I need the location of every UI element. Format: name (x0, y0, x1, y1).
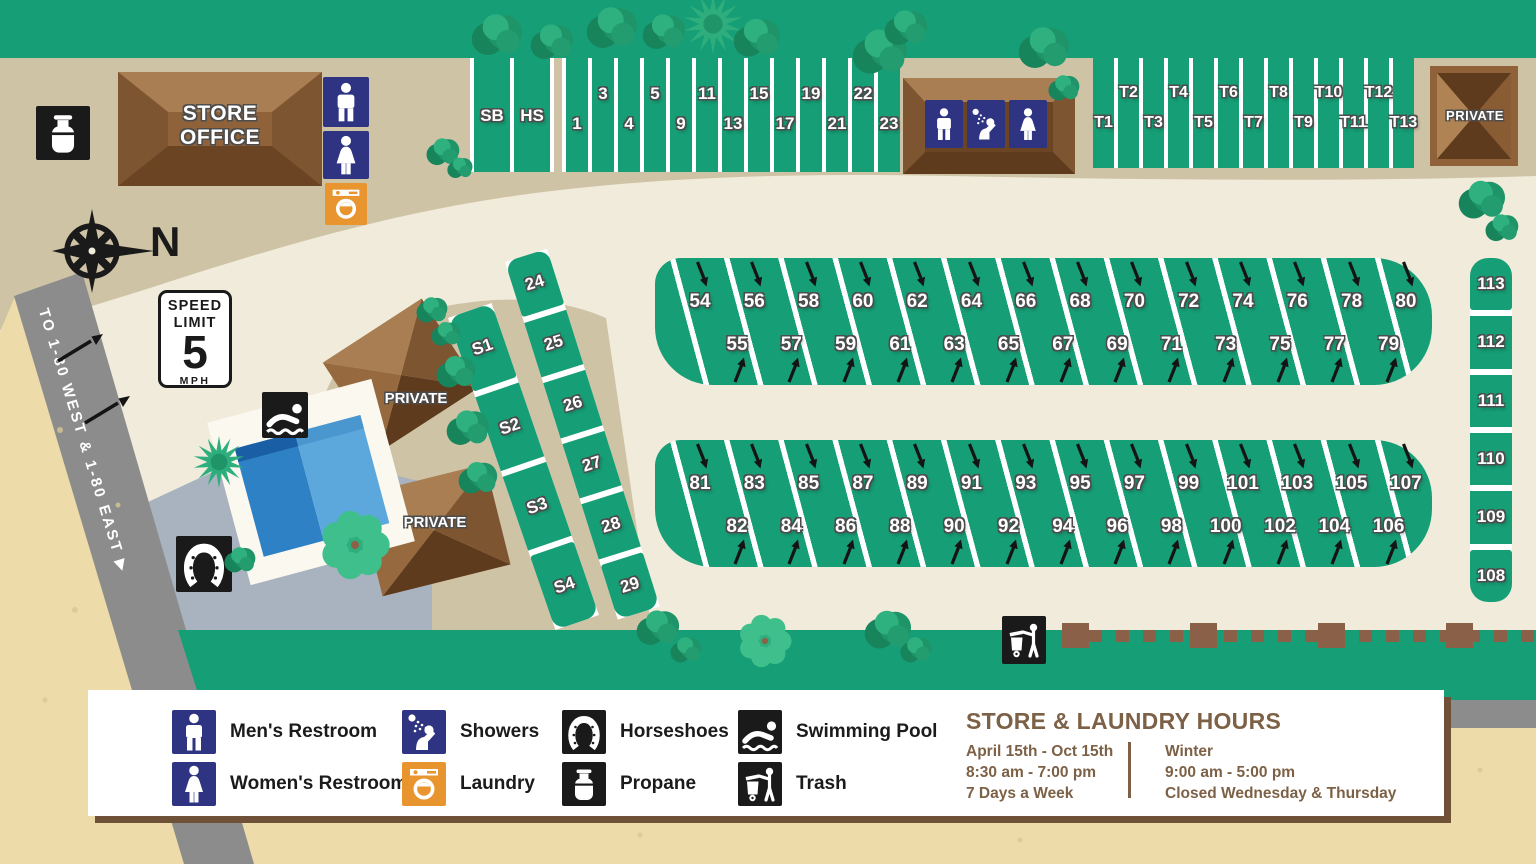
pull-in-arrow-icon (732, 356, 749, 383)
pull-in-arrow-icon (894, 538, 911, 565)
pull-in-arrow-icon (1003, 538, 1020, 565)
campsite-label: 89 (907, 473, 928, 495)
pull-in-arrow-icon (1346, 443, 1363, 470)
campsite-label: 60 (852, 291, 873, 313)
mens-restroom-icon (172, 710, 216, 754)
campsite-label: 65 (998, 334, 1019, 356)
front-campsite-row: SBHS134591113151719212223 (450, 58, 900, 172)
pull-in-arrow-icon (1275, 356, 1292, 383)
campsite-label: 102 (1264, 516, 1296, 538)
campground-map: STOREOFFICE PRIVATE PRIVATE PRIVATE (0, 0, 1536, 864)
pull-in-arrow-icon (1329, 538, 1346, 565)
campsite-label: 80 (1395, 291, 1416, 313)
pull-in-arrow-icon (786, 356, 803, 383)
campsite-label: 9 (676, 114, 685, 134)
campsite-label: T10 (1315, 84, 1343, 102)
campsite-label: 54 (689, 291, 710, 313)
legend-item-label: Showers (460, 721, 539, 743)
campsite-label: 92 (998, 516, 1019, 538)
campsite-label: 57 (781, 334, 802, 356)
pull-in-arrow-icon (1329, 356, 1346, 383)
campsite-label: 113 (1477, 274, 1504, 294)
campsite-label: 68 (1070, 291, 1091, 313)
pull-in-arrow-icon (1400, 261, 1417, 288)
legend-item-label: Women's Restroom (230, 773, 407, 795)
strip-gap (554, 58, 562, 172)
campsite-label: 93 (1015, 473, 1036, 495)
showers-icon (402, 710, 446, 754)
pull-in-arrow-icon (1383, 356, 1400, 383)
campsite-label: 74 (1232, 291, 1253, 313)
legend-item-label: Horseshoes (620, 721, 729, 743)
horseshoes-icon (562, 710, 606, 754)
fence (1062, 630, 1536, 642)
legend-item: Trash (738, 762, 847, 806)
pull-through-band-1: 5456586062646668707274767880555759616365… (655, 258, 1432, 385)
speed-limit-sign: SPEEDLIMIT 5 MPH (158, 290, 232, 388)
pull-in-arrow-icon (1020, 261, 1037, 288)
legend-item: Swimming Pool (738, 710, 937, 754)
campsite-strip: 11 (696, 58, 718, 172)
pull-in-arrow-icon (749, 261, 766, 288)
campsite-label: 58 (798, 291, 819, 313)
campsite-label: 62 (907, 291, 928, 313)
legend-item-label: Trash (796, 773, 847, 795)
campsite-label: T7 (1244, 114, 1263, 132)
legend-item: Showers (402, 710, 539, 754)
campsite-strip: T4 (1168, 58, 1189, 168)
campsite-block: 112 (1470, 316, 1512, 368)
campsite-label: S1 (469, 335, 495, 361)
pull-in-arrow-icon (840, 356, 857, 383)
pull-in-arrow-icon (857, 443, 874, 470)
legend-item-label: Laundry (460, 773, 535, 795)
tent-campsite-row: T1T2T3T4T5T6T7T8T9T10T11T12T13 (1093, 58, 1414, 168)
campsite-label: 71 (1161, 334, 1182, 356)
campsite-label: 77 (1324, 334, 1345, 356)
campsite-label: 99 (1178, 473, 1199, 495)
pull-in-arrow-icon (786, 538, 803, 565)
campsite-label: 11 (698, 84, 716, 104)
campsite-strip: 9 (670, 58, 692, 172)
hours-season-winter: Winter9:00 am - 5:00 pmClosed Wednesday … (1165, 742, 1396, 805)
campsite-label: 22 (854, 84, 873, 104)
campsite-label: 55 (726, 334, 747, 356)
campsite-label: 88 (889, 516, 910, 538)
pull-in-arrow-icon (966, 443, 983, 470)
campsite-label: 73 (1215, 334, 1236, 356)
campsite-strip: 23 (878, 58, 900, 172)
swimming-pool-icon (738, 710, 782, 754)
campsite-label: 105 (1336, 473, 1368, 495)
pull-in-arrow-icon (1166, 538, 1183, 565)
campsite-label: 29 (618, 573, 642, 598)
campsite-strip: T13 (1393, 58, 1414, 168)
campsite-label: 81 (689, 473, 710, 495)
campsite-label: S2 (497, 414, 523, 440)
campsite-label: 100 (1210, 516, 1242, 538)
pull-in-arrow-icon (695, 261, 712, 288)
campsite-label: T1 (1094, 114, 1113, 132)
pull-in-arrow-icon (1057, 538, 1074, 565)
pull-in-arrow-icon (1112, 356, 1129, 383)
campsite-label: 15 (750, 84, 769, 104)
campsite-label: 112 (1477, 332, 1504, 352)
campsite-label: 1 (572, 114, 581, 134)
campsite-label: 69 (1107, 334, 1128, 356)
campsite-label: 83 (744, 473, 765, 495)
campsite-label: 72 (1178, 291, 1199, 313)
campsite-label: T13 (1390, 114, 1418, 132)
campsite-label: 64 (961, 291, 982, 313)
pull-in-arrow-icon (1112, 538, 1129, 565)
campsite-block: 109 (1470, 491, 1512, 543)
campsite-strip: T11 (1343, 58, 1364, 168)
campsite-strip: T6 (1218, 58, 1239, 168)
campsite-strip: T2 (1118, 58, 1139, 168)
pull-in-arrow-icon (803, 261, 820, 288)
campsite-label: 109 (1477, 507, 1505, 527)
campsite-label: T3 (1144, 114, 1163, 132)
campsite-label: 95 (1070, 473, 1091, 495)
pull-in-arrow-icon (1129, 261, 1146, 288)
compass-north-label: N (150, 218, 180, 266)
pull-in-arrow-icon (1183, 443, 1200, 470)
pull-in-arrow-icon (1129, 443, 1146, 470)
campsite-strip: T5 (1193, 58, 1214, 168)
campsite-label: 63 (944, 334, 965, 356)
campsite-label: 98 (1161, 516, 1182, 538)
legend-item-label: Men's Restroom (230, 721, 377, 743)
compass-rose-icon (46, 205, 166, 297)
campsite-label: 19 (802, 84, 821, 104)
womens-restroom-icon (172, 762, 216, 806)
campsite-label: 101 (1227, 473, 1259, 495)
campsite-label: 107 (1390, 473, 1422, 495)
campsite-label: 28 (599, 513, 623, 538)
campsite-label: 59 (835, 334, 856, 356)
pull-in-arrow-icon (749, 443, 766, 470)
pull-in-arrow-icon (949, 538, 966, 565)
pull-in-arrow-icon (1292, 443, 1309, 470)
campsite-label: 27 (580, 452, 604, 477)
campsite-label: S3 (524, 493, 550, 519)
campsite-label: 86 (835, 516, 856, 538)
pull-in-arrow-icon (695, 443, 712, 470)
pull-in-arrow-icon (1075, 443, 1092, 470)
campsite-strip: T12 (1368, 58, 1389, 168)
speed-limit-value: 5 (161, 331, 229, 375)
campsite-label: 103 (1281, 473, 1313, 495)
campsite-label: 110 (1477, 449, 1504, 469)
campsite-strip: T8 (1268, 58, 1289, 168)
pull-in-arrow-icon (1075, 261, 1092, 288)
campsite-label: SB (480, 106, 504, 126)
pull-in-arrow-icon (1220, 356, 1237, 383)
campsite-strip: T7 (1243, 58, 1264, 168)
legend-panel: Men's RestroomWomen's RestroomShowersLau… (88, 690, 1444, 816)
campsite-label: T4 (1169, 84, 1188, 102)
campsite-strip: HS (514, 58, 550, 172)
pull-in-arrow-icon (912, 443, 929, 470)
campsite-strip: 4 (618, 58, 640, 172)
campsite-label: 67 (1052, 334, 1073, 356)
campsite-strip: 19 (800, 58, 822, 172)
campsite-label: 106 (1373, 516, 1405, 538)
campsite-strip: 17 (774, 58, 796, 172)
legend-item-label: Propane (620, 773, 696, 795)
pull-in-arrow-icon (857, 261, 874, 288)
swimming-pool (235, 415, 390, 557)
campsite-label: 79 (1378, 334, 1399, 356)
propane-icon (562, 762, 606, 806)
campsite-strip: SB (474, 58, 510, 172)
hours-title: STORE & LAUNDRY HOURS (966, 708, 1281, 735)
campsite-label: 85 (798, 473, 819, 495)
campsite-label: 5 (650, 84, 659, 104)
campsite-label: 17 (776, 114, 795, 134)
pull-in-arrow-icon (1400, 443, 1417, 470)
pull-in-arrow-icon (840, 538, 857, 565)
private-house-1-label: PRIVATE (356, 390, 476, 407)
legend-item: Women's Restroom (172, 762, 407, 806)
pull-in-arrow-icon (1057, 356, 1074, 383)
campsite-label: T12 (1365, 84, 1393, 102)
campsite-label: 94 (1052, 516, 1073, 538)
trash-icon (738, 762, 782, 806)
campsite-strip: T1 (1093, 58, 1114, 168)
pull-in-arrow-icon (1238, 443, 1255, 470)
campsite-label: 23 (880, 114, 899, 134)
campsite-strip: T10 (1318, 58, 1339, 168)
campsite-label: 21 (828, 114, 847, 134)
campsite-label: 76 (1287, 291, 1308, 313)
campsite-strip: T3 (1143, 58, 1164, 168)
strip-gap (450, 58, 470, 172)
campsite-label: T11 (1340, 114, 1367, 132)
legend-item-label: Swimming Pool (796, 721, 937, 743)
pull-in-arrow-icon (894, 356, 911, 383)
campsite-label: 70 (1124, 291, 1145, 313)
hours-season-summer: April 15th - Oct 15th8:30 am - 7:00 pm7 … (966, 742, 1113, 805)
campsite-strip: 1 (566, 58, 588, 172)
pull-in-arrow-icon (966, 261, 983, 288)
campsite-label: 3 (598, 84, 607, 104)
pull-in-arrow-icon (912, 261, 929, 288)
pull-in-arrow-icon (1383, 538, 1400, 565)
campsite-label: 90 (944, 516, 965, 538)
campsite-block: 111 (1470, 375, 1512, 427)
campsite-label: 75 (1269, 334, 1290, 356)
campsite-strip: 3 (592, 58, 614, 172)
campsite-label: 26 (561, 392, 585, 417)
campsite-block: 110 (1470, 433, 1512, 485)
private-house-2-label: PRIVATE (375, 514, 495, 531)
campsite-block: 113 (1470, 258, 1512, 310)
campsite-label: 4 (624, 114, 633, 134)
campsite-label: 24 (523, 270, 547, 295)
pull-through-band-2: 8183858789919395979910110310510782848688… (655, 440, 1432, 567)
campsite-label: 13 (724, 114, 743, 134)
legend-item: Men's Restroom (172, 710, 377, 754)
campsite-label: 84 (781, 516, 802, 538)
laundry-icon (402, 762, 446, 806)
pull-in-arrow-icon (732, 538, 749, 565)
store-office-label: STOREOFFICE (120, 102, 320, 149)
campsite-label: 82 (726, 516, 747, 538)
campsite-label: S4 (551, 573, 577, 599)
pull-in-arrow-icon (1020, 443, 1037, 470)
campsite-label: T5 (1194, 114, 1213, 132)
campsite-label: 87 (852, 473, 873, 495)
campsite-label: 56 (744, 291, 765, 313)
pull-in-arrow-icon (803, 443, 820, 470)
campsite-label: 78 (1341, 291, 1362, 313)
private-building-north-label: PRIVATE (1432, 108, 1518, 123)
north-green-band (0, 0, 1536, 58)
shower-building (903, 78, 1075, 174)
pull-in-arrow-icon (1238, 261, 1255, 288)
campsite-label: 104 (1318, 516, 1350, 538)
campsite-label: T9 (1294, 114, 1313, 132)
campsite-label: 97 (1124, 473, 1145, 495)
pull-in-arrow-icon (949, 356, 966, 383)
campsite-label: T2 (1119, 84, 1138, 102)
pull-in-arrow-icon (1220, 538, 1237, 565)
campsite-strip: 15 (748, 58, 770, 172)
campsite-label: 96 (1107, 516, 1128, 538)
campsite-block: 108 (1470, 550, 1512, 602)
legend-item: Horseshoes (562, 710, 729, 754)
campsite-strip: T9 (1293, 58, 1314, 168)
campsite-strip: 13 (722, 58, 744, 172)
campsite-label: HS (520, 106, 544, 126)
direction-arrow-icon (55, 330, 107, 366)
pull-in-arrow-icon (1003, 356, 1020, 383)
campsite-label: 111 (1478, 391, 1505, 411)
campsite-label: 25 (542, 331, 566, 356)
pull-in-arrow-icon (1183, 261, 1200, 288)
campsite-strip: 22 (852, 58, 874, 172)
campsite-strip: 21 (826, 58, 848, 172)
pull-in-arrow-icon (1346, 261, 1363, 288)
pull-in-arrow-icon (1166, 356, 1183, 383)
campsite-label: T8 (1269, 84, 1288, 102)
pull-in-arrow-icon (1292, 261, 1309, 288)
campsite-strip: 5 (644, 58, 666, 172)
direction-arrow-icon (82, 392, 134, 428)
legend-item: Laundry (402, 762, 535, 806)
legend-item: Propane (562, 762, 696, 806)
campsite-label: 61 (889, 334, 910, 356)
campsite-label: 108 (1477, 566, 1505, 586)
campsite-label: 91 (961, 473, 982, 495)
pull-in-arrow-icon (1275, 538, 1292, 565)
hours-divider (1128, 742, 1131, 798)
east-campsite-column: 113112111110109108 (1470, 258, 1512, 602)
campsite-label: 66 (1015, 291, 1036, 313)
campsite-label: T6 (1219, 84, 1238, 102)
